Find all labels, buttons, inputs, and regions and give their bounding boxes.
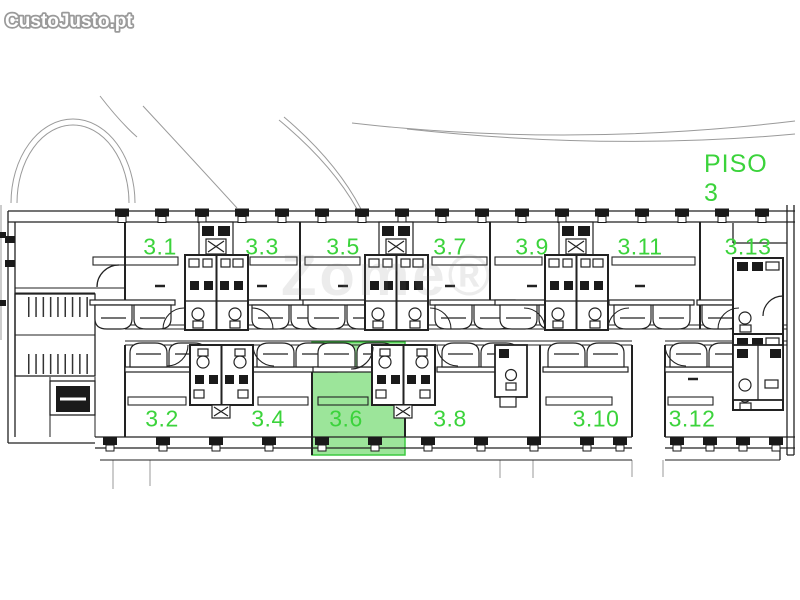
room-label-3-3: 3.3 — [245, 234, 278, 261]
room-label-3-9: 3.9 — [515, 234, 548, 261]
room-label-3-1: 3.1 — [143, 234, 176, 261]
floor-title: PISO 3 — [704, 150, 768, 208]
room-label-3-2: 3.2 — [145, 406, 178, 433]
listing-image: Zome® CustoJusto.pt PISO 3 3.1 3.3 3.5 3… — [0, 0, 800, 600]
room-label-3-8: 3.8 — [433, 406, 466, 433]
brand-logo-text: CustoJusto.pt — [5, 11, 133, 32]
room-label-3-4: 3.4 — [251, 406, 284, 433]
room-label-3-6: 3.6 — [329, 406, 362, 433]
room-label-3-12: 3.12 — [669, 406, 716, 433]
core-3-12 — [733, 345, 783, 400]
room-label-3-7: 3.7 — [433, 234, 466, 261]
bottom-wall-pillars — [103, 437, 783, 451]
room-label-3-10: 3.10 — [573, 406, 620, 433]
room-label-3-5: 3.5 — [326, 234, 359, 261]
core-3-8 — [495, 345, 527, 407]
brand-logo: CustoJusto.pt — [2, 4, 182, 36]
room-label-3-11: 3.11 — [617, 234, 662, 261]
room-label-3-13: 3.13 — [725, 234, 772, 261]
